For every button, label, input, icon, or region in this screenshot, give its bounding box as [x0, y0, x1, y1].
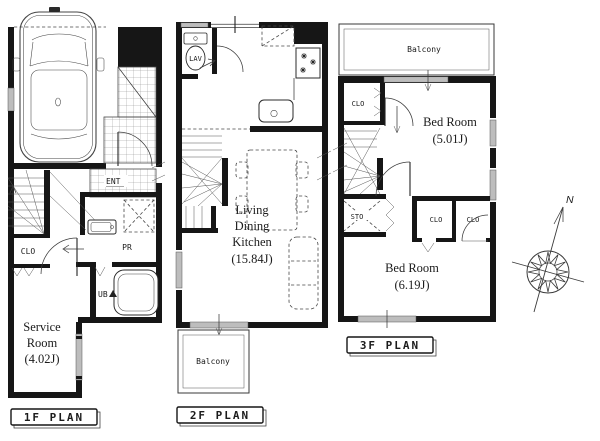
staircase-3f	[344, 128, 380, 194]
chair	[236, 162, 248, 178]
ldk-line-3: Kitchen	[232, 235, 272, 249]
bedroom-upper: Bed Room (5.01J)	[385, 98, 477, 146]
service-room-name-2: Room	[27, 336, 58, 350]
closet-left-3f: CLO	[422, 216, 442, 252]
ldk-room-label: Living Dining Kitchen (15.84J)	[231, 203, 272, 266]
entrance-label: ENT	[106, 177, 121, 186]
car-antenna	[49, 7, 60, 12]
service-room-door-arc	[41, 238, 77, 274]
closet-upper-label: CLO	[352, 100, 365, 108]
storage-3f: STO	[344, 199, 394, 231]
floor-plan-drawing: ENT	[0, 0, 600, 441]
sink-1f	[88, 220, 116, 234]
compass-rose: N	[512, 194, 584, 312]
chair	[296, 162, 308, 178]
ldk-line-1: Living	[235, 203, 269, 217]
balcony-2f-label: Balcony	[196, 357, 230, 366]
closet-right-3f: CLO	[462, 215, 488, 241]
closet-left-label: CLO	[430, 216, 443, 224]
floor-plan-1f: ENT	[8, 7, 165, 428]
unit-bath-label: UB	[98, 290, 108, 299]
balcony-3f-label: Balcony	[407, 45, 441, 54]
bedroom-upper-name: Bed Room	[423, 115, 477, 129]
lav-door-arc	[217, 46, 243, 72]
floor-plan-2f: LAV	[176, 16, 331, 426]
bedroom-upper-door-arc	[385, 98, 413, 126]
stove	[296, 48, 320, 78]
service-room-size: (4.02J)	[24, 352, 59, 366]
bedroom-lower: Bed Room (6.19J)	[385, 261, 439, 292]
north-label: N	[566, 194, 574, 206]
bedroom-upper-size: (5.01J)	[432, 132, 467, 146]
north-arrow	[554, 207, 563, 224]
garage-window	[8, 88, 14, 111]
dining-table	[236, 150, 308, 230]
lav-window	[181, 23, 208, 27]
closet-1f-label: CLO	[21, 247, 36, 256]
car-icon	[13, 7, 104, 162]
powder-room-label: PR	[122, 243, 132, 252]
balcony-2f: Balcony	[178, 330, 249, 393]
approach-stairs	[104, 67, 156, 163]
balcony-3f: Balcony	[339, 24, 494, 75]
plan-label-3f: 3F PLAN	[347, 337, 436, 356]
plan-label-1f-text: 1F PLAN	[24, 411, 84, 424]
left-window-2f	[176, 252, 182, 288]
right-window-upper-3f	[490, 120, 496, 146]
bedroom-lower-size: (6.19J)	[394, 278, 429, 292]
sliding-door-arrow	[63, 245, 84, 253]
unit-bath: UB	[98, 270, 158, 315]
ldk-size: (15.84J)	[231, 252, 272, 266]
ldk-line-2: Dining	[235, 219, 270, 233]
service-room-window	[76, 334, 82, 380]
storage-label: STO	[351, 213, 364, 221]
plan-label-2f: 2F PLAN	[177, 407, 266, 426]
closet-1f: CLO	[12, 247, 35, 276]
toilet-tank	[184, 33, 207, 44]
floor-plan-page: ENT	[0, 0, 600, 441]
car-mirror-left	[13, 58, 20, 71]
bathtub	[114, 270, 158, 315]
plan-label-1f: 1F PLAN	[11, 409, 100, 428]
closet-upper-3f: CLO	[352, 88, 381, 116]
chair	[296, 196, 308, 212]
car-mirror-right	[97, 58, 104, 71]
service-room: Service Room (4.02J)	[23, 320, 82, 380]
sofa	[289, 237, 318, 309]
plan-label-3f-text: 3F PLAN	[360, 339, 420, 352]
service-room-name-1: Service	[23, 320, 61, 334]
bedroom-lower-name: Bed Room	[385, 261, 439, 275]
lavatory-label: LAV	[189, 55, 202, 63]
balcony-door-3f	[384, 77, 448, 82]
right-window-lower-3f	[490, 170, 496, 200]
floor-plan-3f: Balcony CLO	[333, 24, 496, 356]
plan-label-2f-text: 2F PLAN	[190, 409, 250, 422]
